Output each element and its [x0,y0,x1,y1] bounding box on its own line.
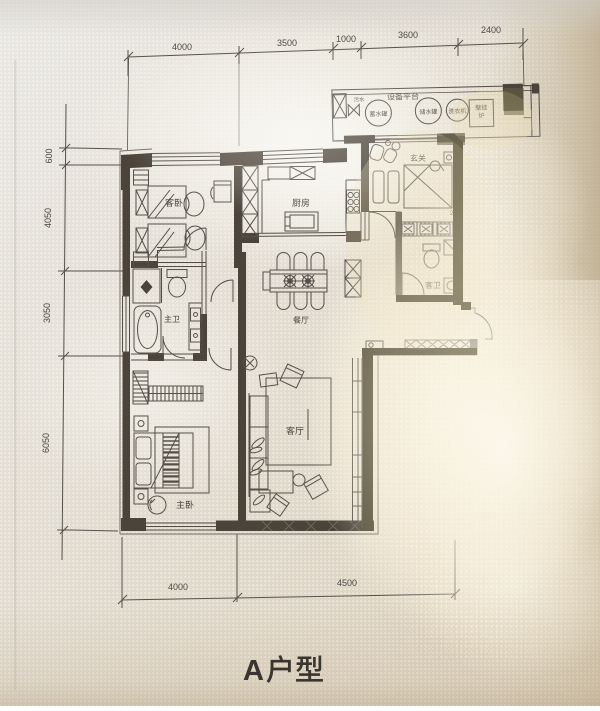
svg-text:600: 600 [44,148,54,163]
svg-text:4000: 4000 [168,582,188,592]
svg-text:4050: 4050 [43,208,53,228]
svg-text:6050: 6050 [41,433,51,453]
svg-text:3050: 3050 [42,303,52,323]
svg-text:3600: 3600 [398,30,418,40]
svg-text:4500: 4500 [337,578,357,588]
svg-text:A: A [243,655,264,687]
svg-text:2400: 2400 [481,25,501,35]
svg-text:4000: 4000 [172,42,192,52]
